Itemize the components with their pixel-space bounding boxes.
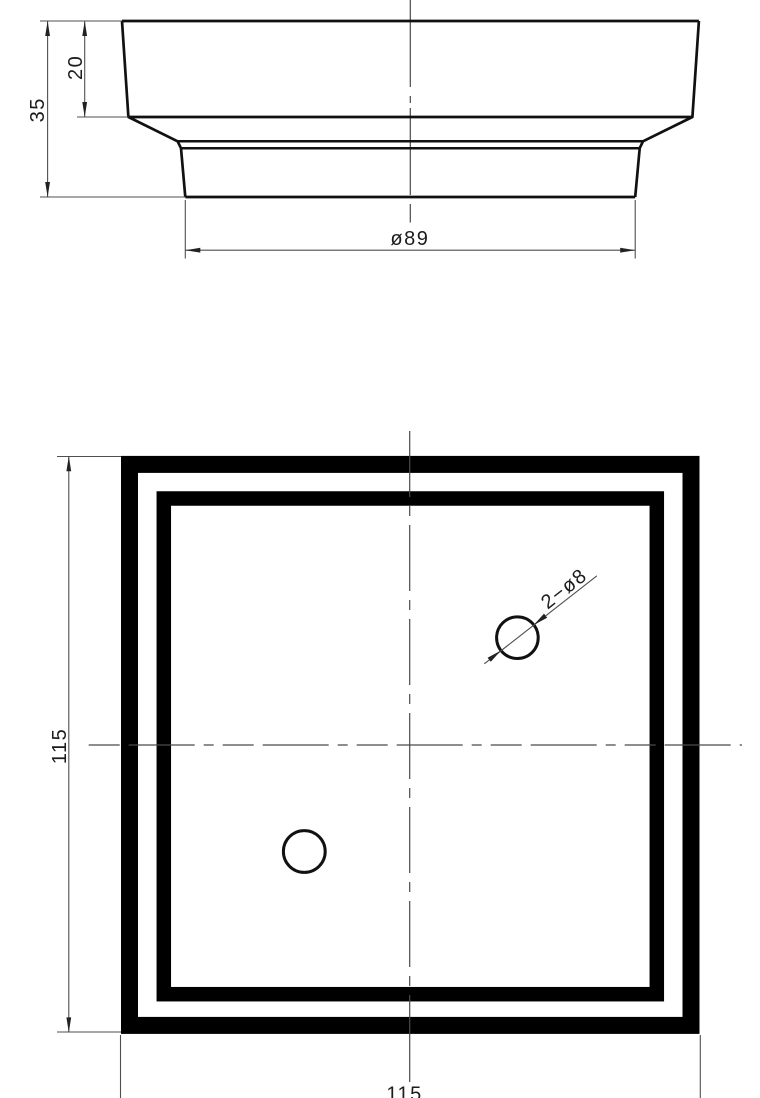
svg-text:20: 20 — [65, 55, 87, 80]
svg-text:ø89: ø89 — [390, 228, 429, 250]
svg-text:115: 115 — [49, 728, 71, 764]
svg-text:115: 115 — [386, 1084, 422, 1098]
svg-text:35: 35 — [27, 97, 49, 122]
